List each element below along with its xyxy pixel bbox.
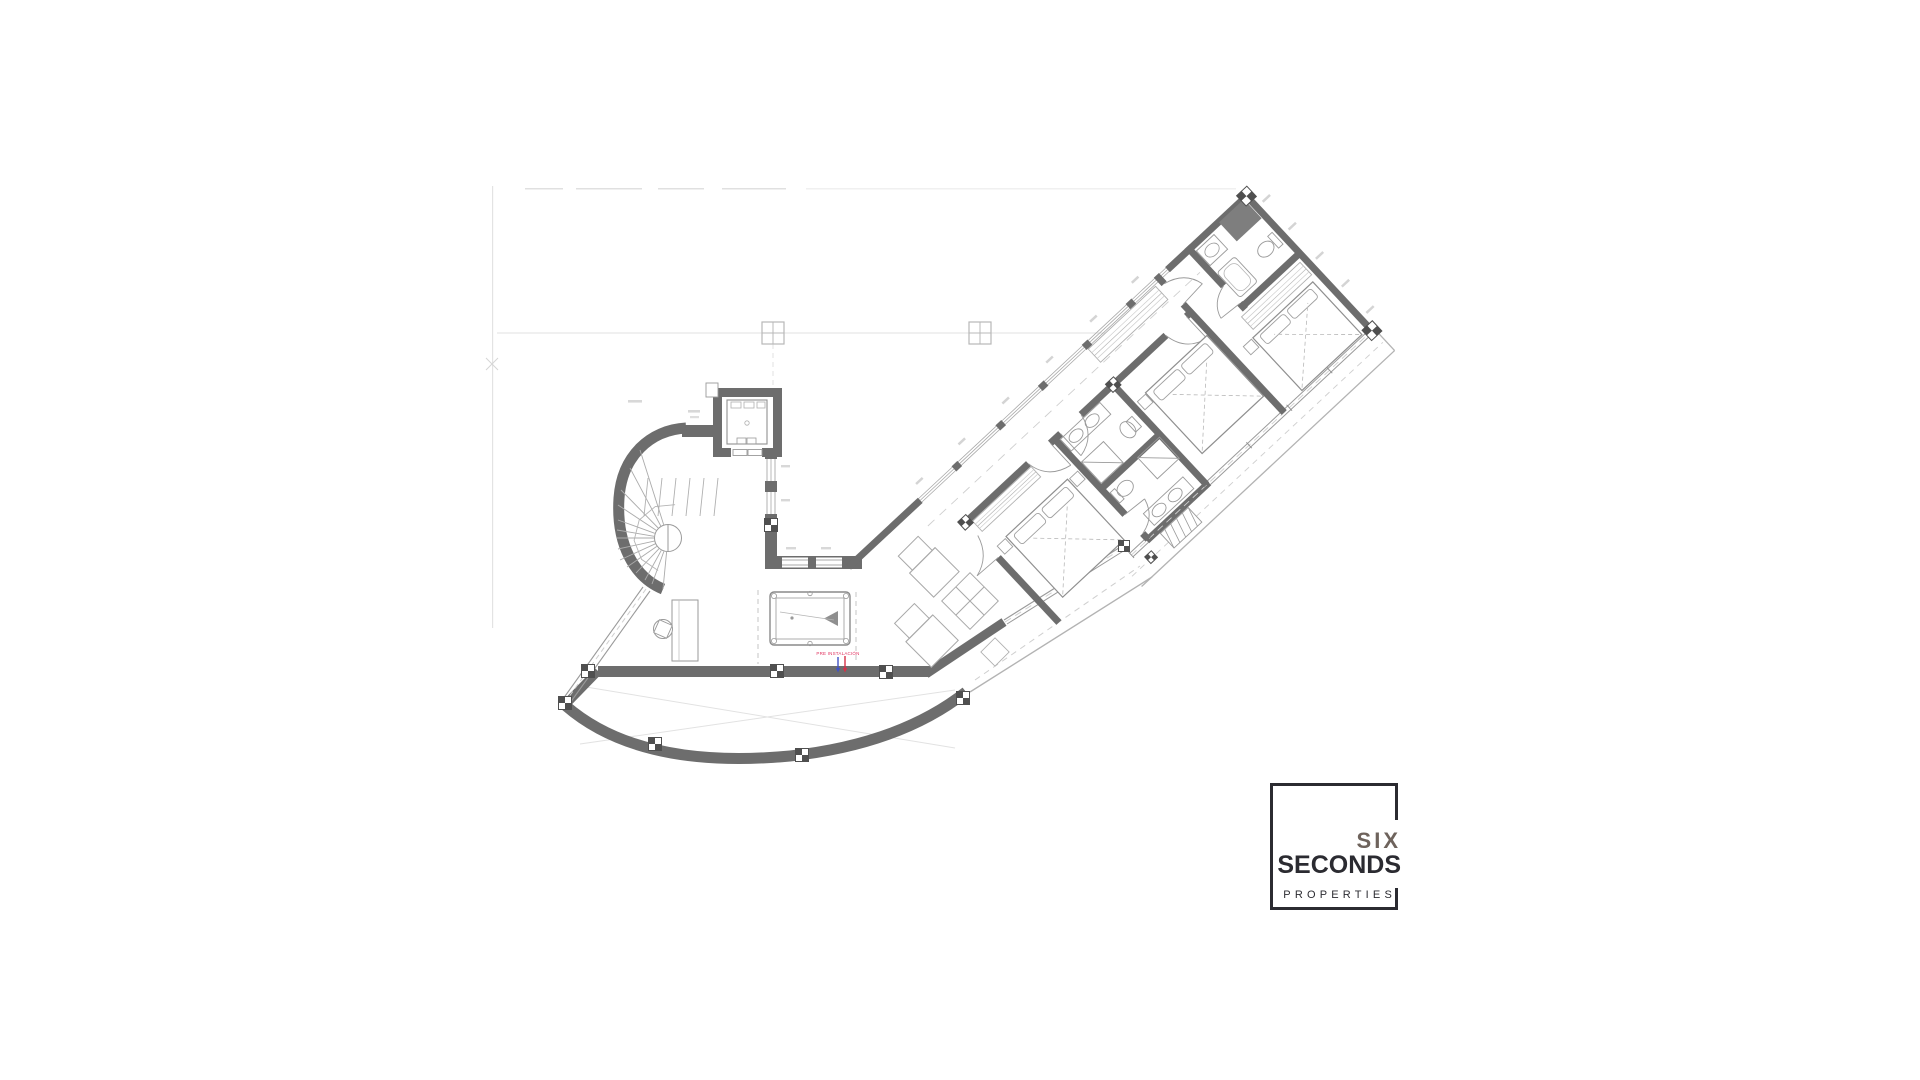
- glazing-column: [1119, 541, 1130, 552]
- desk: [654, 600, 699, 661]
- balcony: [1121, 329, 1395, 587]
- column-marker-icon: [762, 322, 784, 344]
- terrace-column: [559, 697, 572, 710]
- window: [765, 492, 790, 514]
- terrace-column: [796, 749, 809, 762]
- toilet: [1254, 238, 1277, 261]
- living-bottom-wall: [765, 556, 862, 569]
- wall-column: [765, 519, 778, 532]
- elevator-door-notch: [706, 383, 718, 397]
- logo-word-seconds: SECONDS: [1277, 853, 1401, 878]
- window: [765, 459, 790, 481]
- elevator-car: [727, 400, 767, 444]
- balcony-column: [1145, 551, 1158, 564]
- floor-plan: PRE INSTALACIÓN: [0, 0, 1920, 1080]
- terrace-column: [649, 738, 662, 751]
- landing-wall: [682, 425, 715, 437]
- pool-table: [770, 591, 850, 645]
- six-seconds-logo: SIX SECONDS PROPERTIES: [1270, 783, 1398, 910]
- bathroom-c: [1193, 199, 1292, 298]
- terrace-column: [771, 665, 784, 678]
- annotation-label: PRE INSTALACIÓN: [816, 650, 859, 656]
- logo-word-properties: PROPERTIES: [1283, 890, 1396, 901]
- terrace-curved-wall: [566, 692, 966, 759]
- logo-frame: [1270, 783, 1398, 786]
- terrace-column: [582, 665, 595, 678]
- bedroom-2: [1088, 284, 1263, 462]
- living-area: [563, 450, 862, 703]
- bathtub: [1221, 261, 1253, 294]
- bedroom-1: [973, 445, 1134, 606]
- logo-word-six: SIX: [1357, 830, 1401, 852]
- terrace-column: [880, 666, 893, 679]
- column-marker-icon: [969, 322, 991, 344]
- page: PRE INSTALACIÓN: [0, 0, 1920, 1080]
- bath-divider: [1099, 432, 1162, 492]
- elevator: [688, 383, 782, 457]
- furniture: [654, 533, 1010, 667]
- terrace-column: [957, 692, 970, 705]
- stair-elevator-core: [617, 383, 782, 589]
- wardrobe: [1088, 286, 1168, 362]
